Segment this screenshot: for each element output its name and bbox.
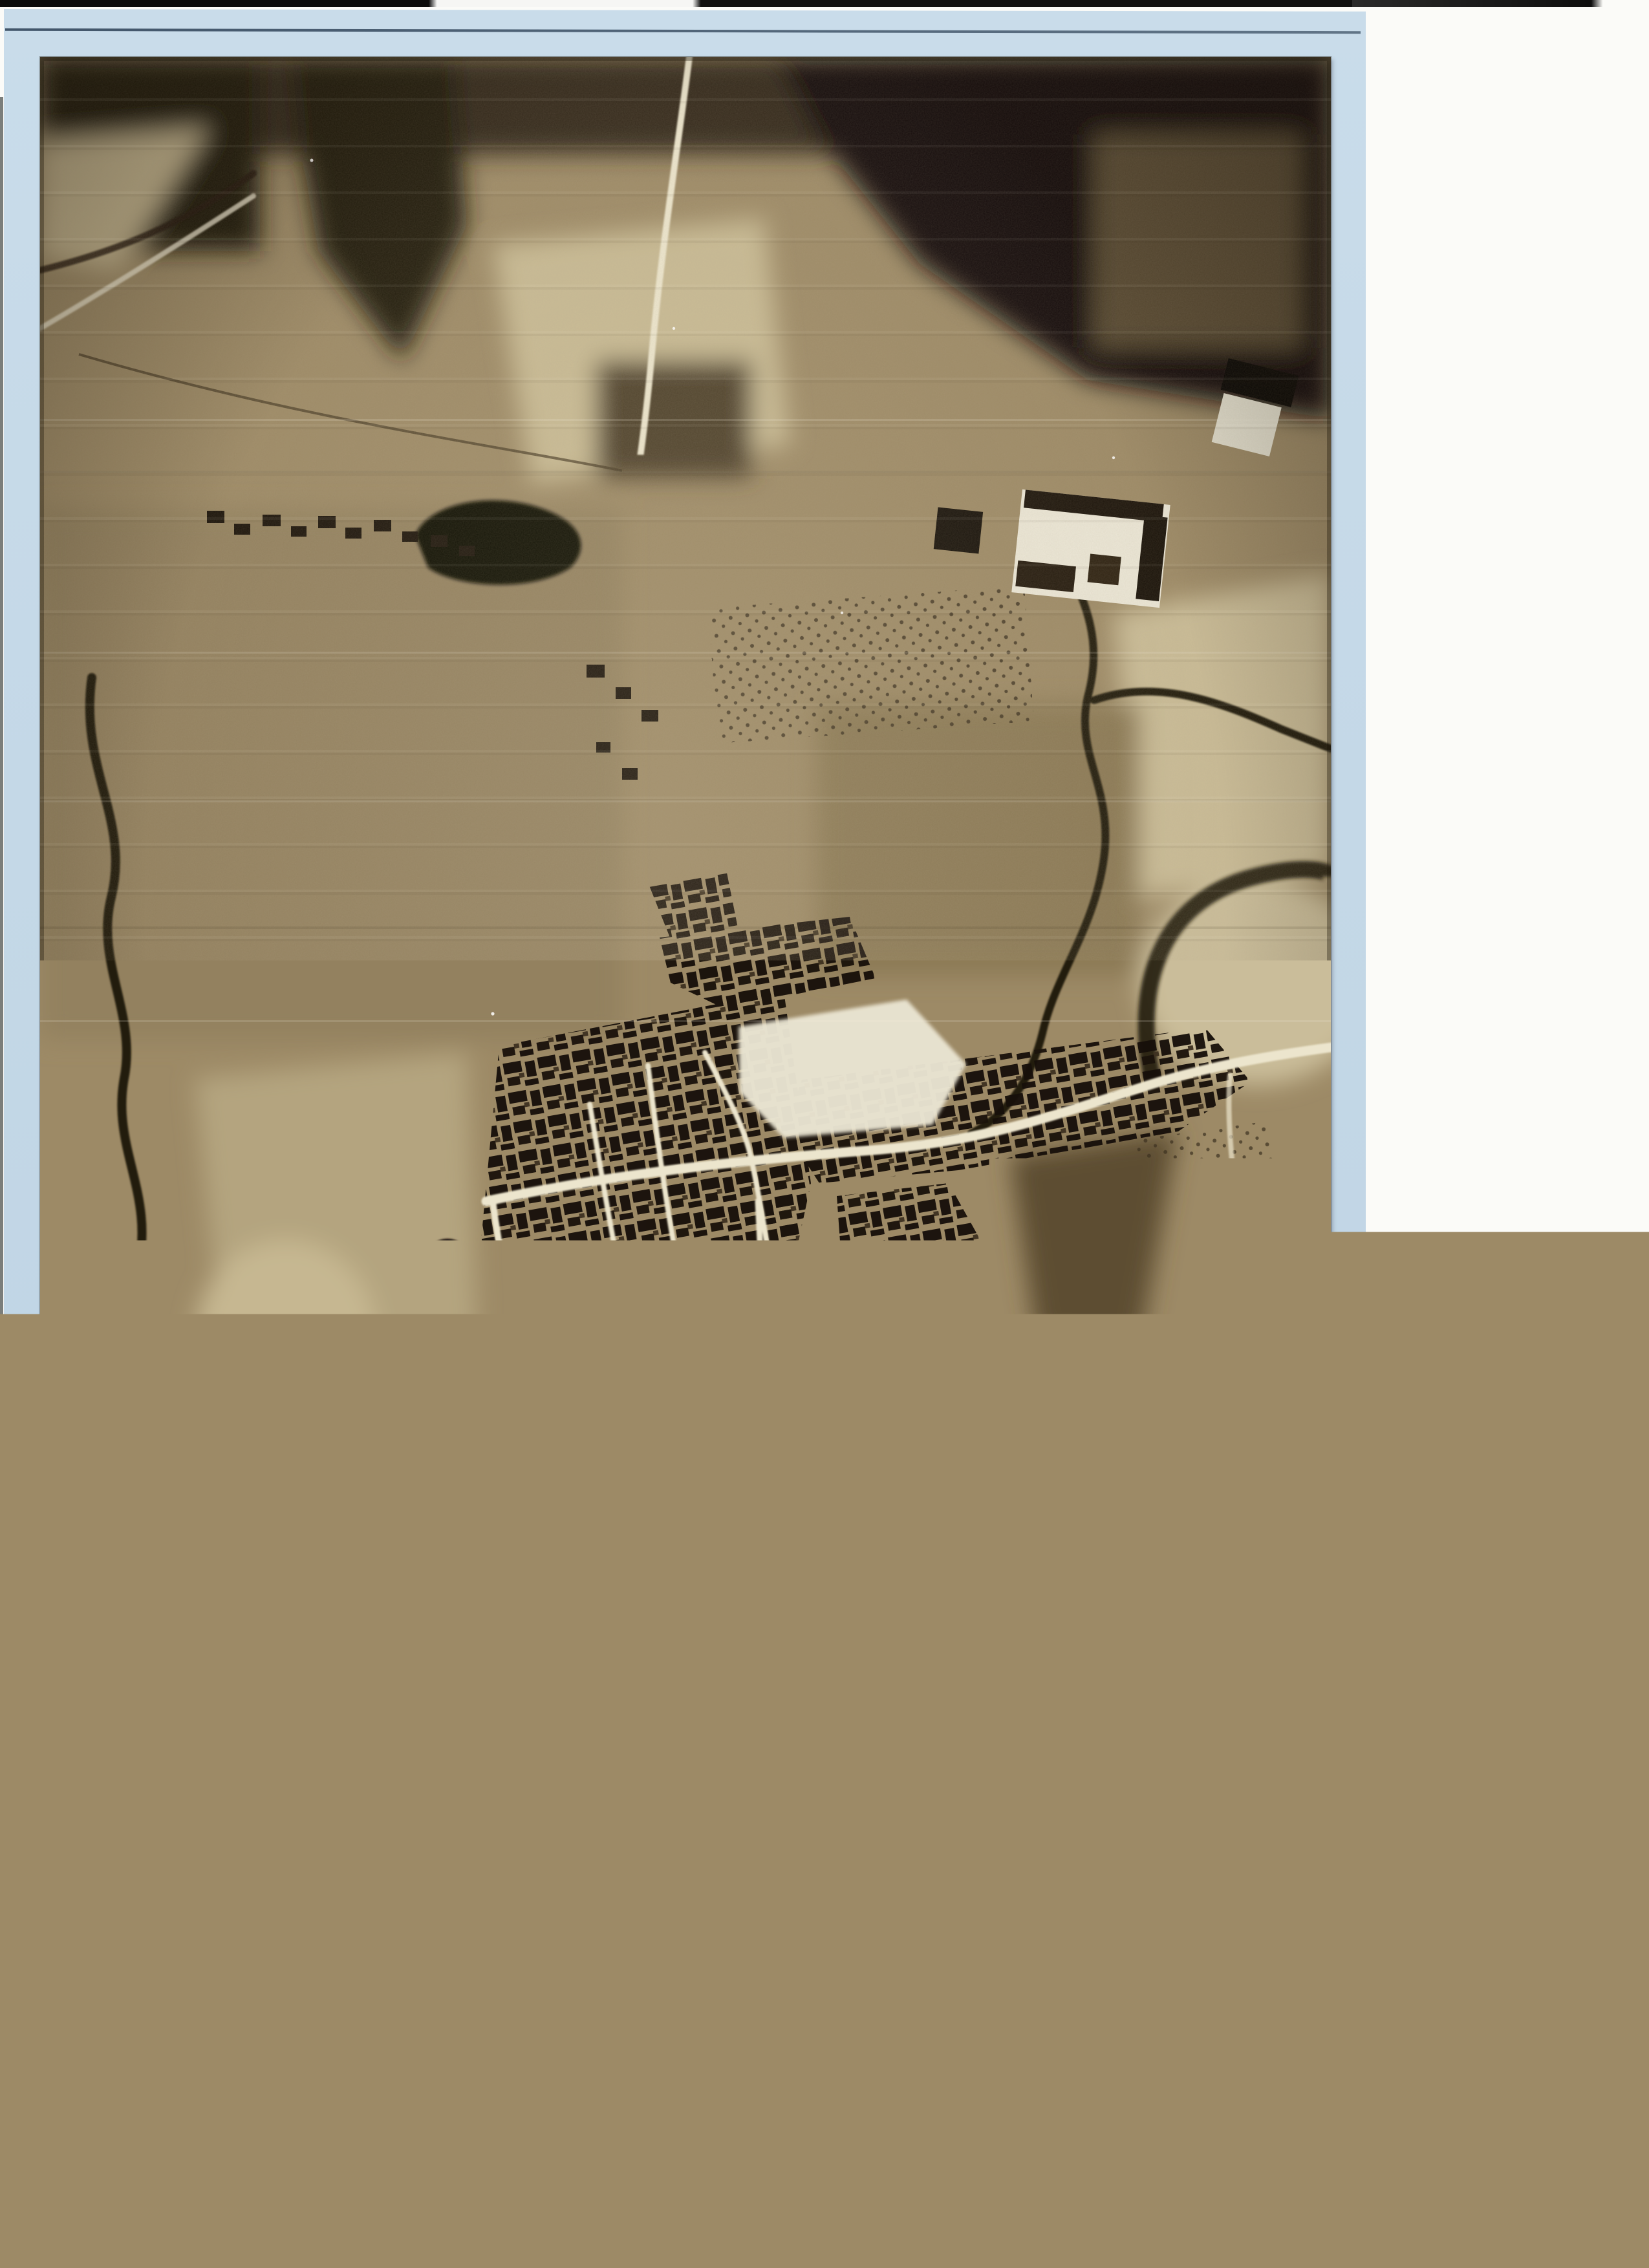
header-rule-line — [5, 28, 1361, 34]
scanner-bottom-edge — [0, 2263, 1649, 2265]
scanner-edge-strip — [0, 0, 1649, 7]
caption-line-2: amerikanischen Aufklärer im April 1945 — [204, 1949, 1026, 1995]
aerial-photo-graphic — [40, 57, 1331, 1903]
page-number-stamp: 002 — [1234, 1986, 1351, 2030]
scanned-archive-sheet: { "scan": { "caption": { "line1": "Luftb… — [0, 0, 1649, 2268]
aerial-photo — [40, 57, 1331, 1903]
scanner-left-mark — [0, 1768, 5, 1813]
archive-page: Luftbild von Flöhau, aufgenommen von ein… — [4, 9, 1366, 2030]
scanner-left-edge — [0, 97, 3, 1726]
